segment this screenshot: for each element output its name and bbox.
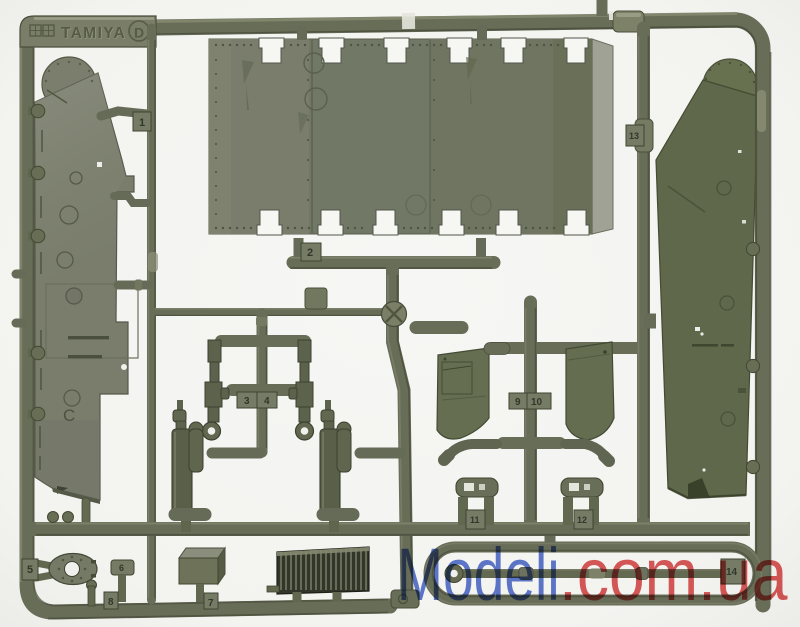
svg-text:8: 8 <box>108 597 114 608</box>
svg-text:13: 13 <box>629 131 639 141</box>
svg-text:C: C <box>63 406 75 425</box>
svg-text:7: 7 <box>208 598 214 609</box>
svg-text:6: 6 <box>119 563 124 573</box>
svg-text:5: 5 <box>27 564 33 576</box>
svg-text:3: 3 <box>244 396 250 407</box>
svg-text:4: 4 <box>264 396 270 407</box>
svg-text:D: D <box>134 25 144 41</box>
svg-text:10: 10 <box>531 397 543 408</box>
svg-text:11: 11 <box>470 515 480 525</box>
svg-text:12: 12 <box>577 515 587 525</box>
svg-text:2: 2 <box>307 247 313 259</box>
svg-text:TAMIYA: TAMIYA <box>61 25 126 42</box>
svg-text:.com.ua: .com.ua <box>559 533 788 616</box>
svg-text:1: 1 <box>139 117 145 129</box>
svg-text:9: 9 <box>515 397 521 408</box>
svg-text:Modeli: Modeli <box>397 533 560 616</box>
